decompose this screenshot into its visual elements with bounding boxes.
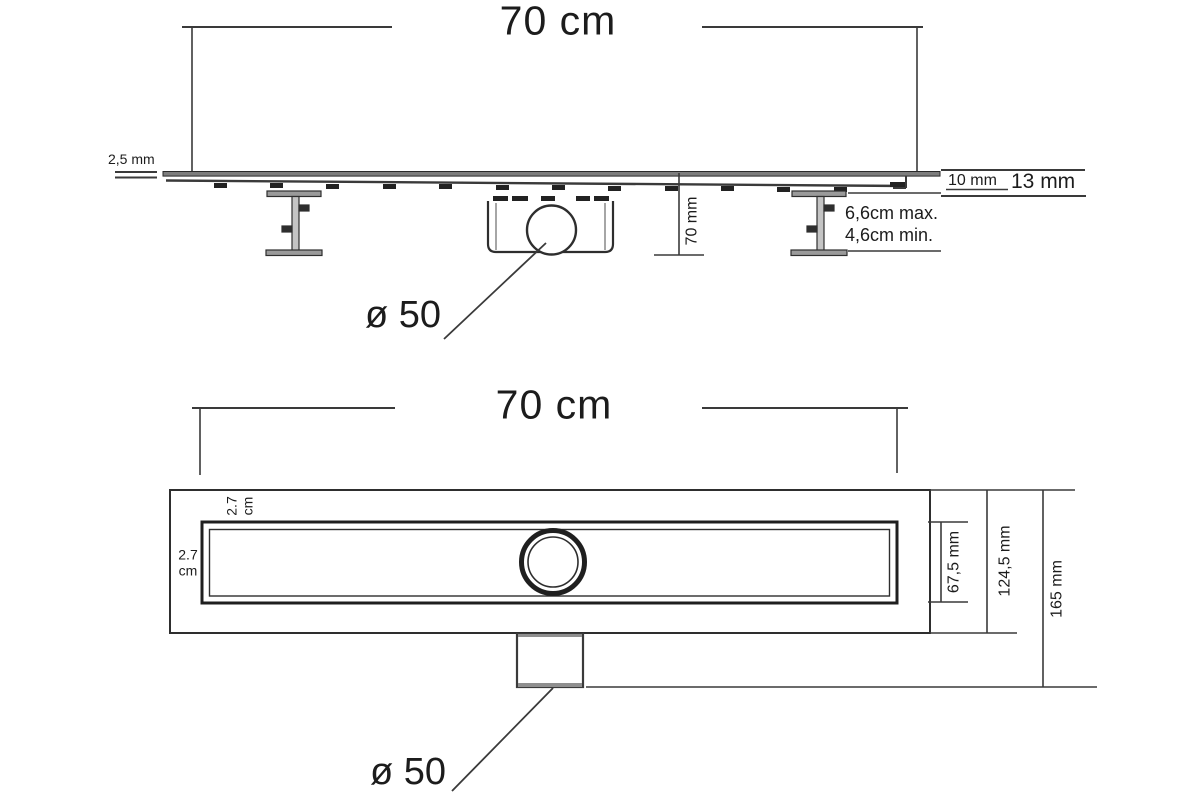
total-width-label: 165 mm (1050, 560, 1067, 618)
plan-left-margin-label: 2.7 cm (178, 547, 197, 578)
plan-outlet-diameter-label: ø 50 (370, 753, 446, 793)
foot-min-height-label: 4,6cm min. (845, 226, 933, 245)
outlet-box (517, 634, 583, 687)
plan-left-margin-unit: cm (178, 563, 197, 579)
body-width-label: 124,5 mm (998, 525, 1015, 596)
plan-top-margin-unit: cm (240, 496, 256, 515)
drain-outlet-circle-plan (522, 531, 585, 594)
dimension-line-70cm-side (182, 27, 923, 172)
shower-channel-profile (163, 172, 940, 193)
edge-height-10mm-label: 10 mm (948, 173, 997, 190)
plan-left-margin-value: 2.7 (178, 547, 197, 563)
side-length-dimension-label: 70 cm (500, 0, 617, 43)
tile-thickness-label: 2,5 mm (108, 152, 155, 167)
side-outlet-diameter-label: ø 50 (365, 296, 441, 336)
adjustable-foot-right (791, 191, 847, 256)
leader-line-plan-outlet (452, 688, 553, 791)
foot-max-height-label: 6,6cm max. (845, 204, 938, 223)
tile-gap-indicator (115, 172, 157, 178)
drain-outlet-circle-side (527, 206, 576, 255)
plan-length-dimension-label: 70 cm (496, 383, 613, 426)
grate-width-label: 67,5 mm (947, 531, 964, 593)
technical-drawing-shower-drain: 70 cm 2,5 mm 10 mm 13 mm 70 mm 6,6cm max… (0, 0, 1200, 800)
leader-line-side-outlet (444, 243, 546, 339)
plan-top-margin-value: 2.7 (224, 496, 240, 515)
adjustable-foot-left (266, 191, 322, 256)
channel-height-label: 70 mm (685, 197, 702, 246)
plan-top-margin-label: 2.7 cm (224, 496, 255, 515)
grate-outline (202, 522, 897, 603)
siphon-trap (488, 196, 613, 255)
side-view-drawing (115, 27, 1086, 339)
plan-view-drawing (170, 408, 1097, 791)
edge-height-13mm-label: 13 mm (1011, 171, 1075, 193)
